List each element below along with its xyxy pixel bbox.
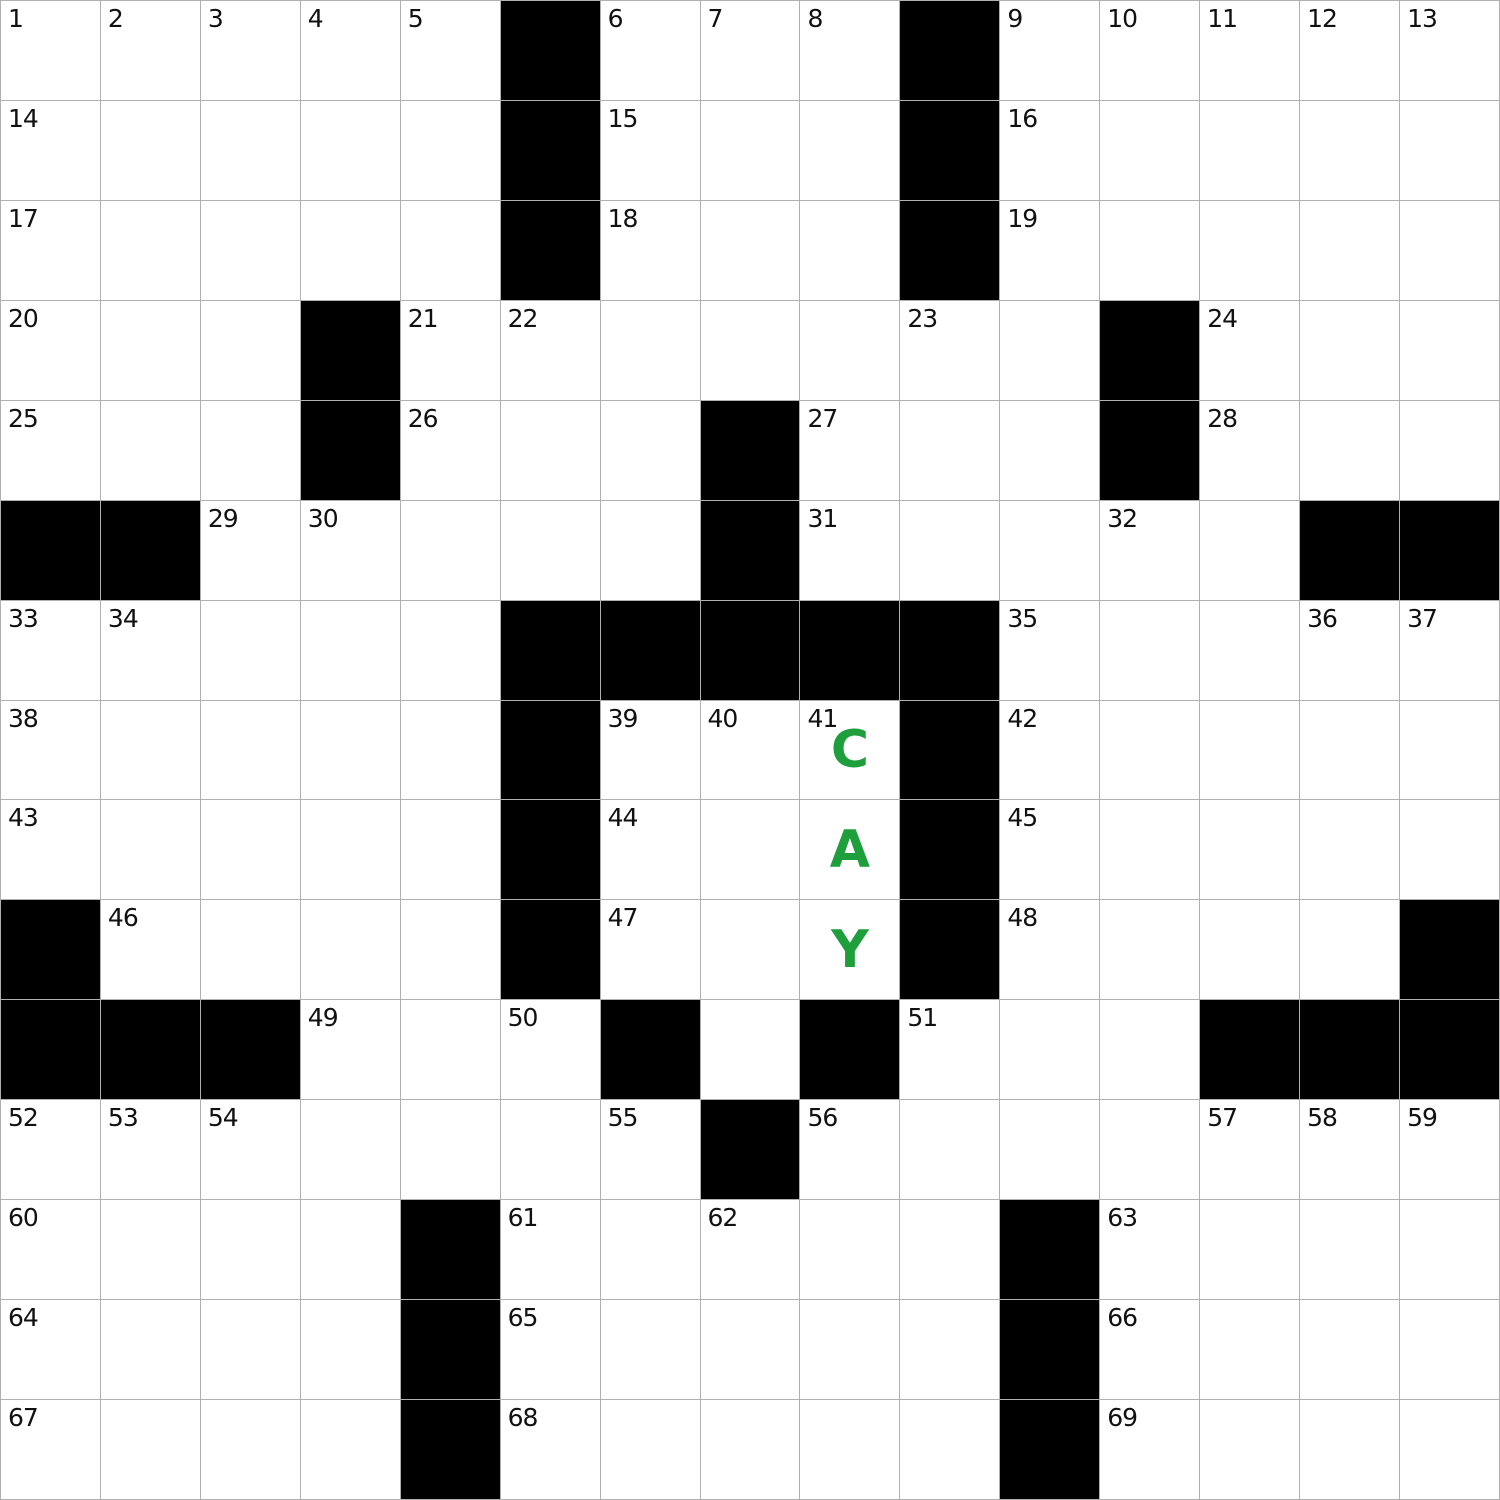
cell-number: 54: [208, 1105, 238, 1130]
black-cell: [501, 701, 600, 800]
grid-cell[interactable]: 20: [1, 301, 100, 400]
grid-cell[interactable]: [401, 1000, 500, 1099]
grid-cell[interactable]: 5: [401, 1, 500, 100]
grid-cell[interactable]: [101, 1300, 200, 1399]
cell-number: 29: [208, 506, 238, 531]
cell-number: 13: [1407, 6, 1437, 31]
grid-cell[interactable]: 65: [501, 1300, 600, 1399]
grid-cell[interactable]: A: [800, 800, 899, 899]
grid-cell[interactable]: [1000, 1000, 1099, 1099]
grid-cell[interactable]: [301, 701, 400, 800]
black-cell: [900, 201, 999, 300]
grid-cell[interactable]: [301, 900, 400, 999]
black-cell: [900, 1, 999, 100]
grid-cell[interactable]: 67: [1, 1400, 100, 1499]
grid-cell[interactable]: 11: [1200, 1, 1299, 100]
grid-cell[interactable]: [1000, 1100, 1099, 1199]
grid-cell[interactable]: 25: [1, 401, 100, 500]
grid-cell[interactable]: [201, 701, 300, 800]
cell-number: 47: [608, 905, 638, 930]
black-cell: [501, 101, 600, 200]
grid-cell[interactable]: [1300, 1300, 1399, 1399]
grid-cell[interactable]: [1200, 501, 1299, 600]
grid-cell[interactable]: 49: [301, 1000, 400, 1099]
grid-cell[interactable]: [900, 401, 999, 500]
grid-cell[interactable]: 8: [800, 1, 899, 100]
crossword-grid: 1234567891011121314151617181920212223242…: [0, 0, 1500, 1500]
grid-cell[interactable]: 7: [701, 1, 800, 100]
grid-cell[interactable]: [201, 1400, 300, 1499]
grid-cell[interactable]: 28: [1200, 401, 1299, 500]
black-cell: [1400, 900, 1499, 999]
black-cell: [1100, 401, 1199, 500]
cell-number: 28: [1207, 406, 1237, 431]
grid-cell[interactable]: 48: [1000, 900, 1099, 999]
grid-cell[interactable]: 53: [101, 1100, 200, 1199]
cell-number: 68: [508, 1405, 538, 1430]
grid-cell[interactable]: 6: [601, 1, 700, 100]
cell-number: 40: [708, 706, 738, 731]
cell-number: 26: [408, 406, 438, 431]
grid-cell[interactable]: [101, 101, 200, 200]
cell-number: 53: [108, 1105, 138, 1130]
cell-number: 17: [8, 206, 38, 231]
grid-cell[interactable]: 68: [501, 1400, 600, 1499]
grid-cell[interactable]: 34: [101, 601, 200, 700]
grid-cell[interactable]: [1200, 701, 1299, 800]
grid-cell[interactable]: [101, 800, 200, 899]
grid-cell[interactable]: [201, 1200, 300, 1299]
grid-cell[interactable]: 13: [1400, 1, 1499, 100]
grid-cell[interactable]: 50: [501, 1000, 600, 1099]
cell-number: 22: [508, 306, 538, 331]
black-cell: [401, 1400, 500, 1499]
grid-cell[interactable]: [301, 101, 400, 200]
cell-number: 37: [1407, 606, 1437, 631]
cell-number: 60: [8, 1205, 38, 1230]
grid-cell[interactable]: 59: [1400, 1100, 1499, 1199]
cell-number: 15: [608, 106, 638, 131]
grid-cell[interactable]: 3: [201, 1, 300, 100]
grid-cell[interactable]: 58: [1300, 1100, 1399, 1199]
grid-cell[interactable]: [401, 101, 500, 200]
grid-cell[interactable]: [301, 1200, 400, 1299]
grid-cell[interactable]: [401, 201, 500, 300]
grid-cell[interactable]: [201, 301, 300, 400]
grid-cell[interactable]: 39: [601, 701, 700, 800]
cell-number: 55: [608, 1105, 638, 1130]
grid-cell[interactable]: 43: [1, 800, 100, 899]
grid-cell[interactable]: [101, 701, 200, 800]
cell-number: 38: [8, 706, 38, 731]
cell-number: 58: [1307, 1105, 1337, 1130]
grid-cell[interactable]: 19: [1000, 201, 1099, 300]
grid-cell[interactable]: 29: [201, 501, 300, 600]
cell-number: 49: [308, 1005, 338, 1030]
black-cell: [301, 301, 400, 400]
grid-cell[interactable]: [800, 1400, 899, 1499]
grid-cell[interactable]: [1300, 401, 1399, 500]
cell-number: 20: [8, 306, 38, 331]
grid-cell[interactable]: 24: [1200, 301, 1299, 400]
grid-cell[interactable]: 60: [1, 1200, 100, 1299]
grid-cell[interactable]: [501, 401, 600, 500]
black-cell: [601, 601, 700, 700]
grid-cell[interactable]: [401, 601, 500, 700]
grid-cell[interactable]: [900, 1200, 999, 1299]
grid-cell[interactable]: [601, 1400, 700, 1499]
black-cell: [900, 900, 999, 999]
grid-cell[interactable]: [201, 601, 300, 700]
cell-number: 18: [608, 206, 638, 231]
grid-cell[interactable]: [101, 201, 200, 300]
grid-cell[interactable]: 37: [1400, 601, 1499, 700]
grid-cell[interactable]: 54: [201, 1100, 300, 1199]
cell-number: 8: [807, 6, 822, 31]
cell-letter: Y: [800, 900, 899, 999]
grid-cell[interactable]: [1200, 201, 1299, 300]
grid-cell[interactable]: [301, 1100, 400, 1199]
grid-cell[interactable]: [1400, 401, 1499, 500]
black-cell: [900, 601, 999, 700]
black-cell: [501, 900, 600, 999]
grid-cell[interactable]: [1300, 701, 1399, 800]
cell-number: 43: [8, 805, 38, 830]
cell-number: 30: [308, 506, 338, 531]
cell-number: 66: [1107, 1305, 1137, 1330]
grid-cell[interactable]: [501, 1100, 600, 1199]
cell-number: 3: [208, 6, 223, 31]
black-cell: [501, 800, 600, 899]
cell-number: 57: [1207, 1105, 1237, 1130]
grid-cell[interactable]: [1200, 1400, 1299, 1499]
grid-cell[interactable]: [1400, 701, 1499, 800]
grid-cell[interactable]: [401, 1100, 500, 1199]
grid-cell[interactable]: 40: [701, 701, 800, 800]
black-cell: [401, 1300, 500, 1399]
grid-cell[interactable]: [1300, 1400, 1399, 1499]
cell-number: 39: [608, 706, 638, 731]
grid-cell[interactable]: 51: [900, 1000, 999, 1099]
cell-number: 10: [1107, 6, 1137, 31]
cell-number: 56: [807, 1105, 837, 1130]
grid-cell[interactable]: [1200, 101, 1299, 200]
grid-cell[interactable]: [1400, 1300, 1499, 1399]
grid-cell[interactable]: [1100, 601, 1199, 700]
black-cell: [1000, 1400, 1099, 1499]
cell-number: 45: [1007, 805, 1037, 830]
grid-cell[interactable]: 23: [900, 301, 999, 400]
grid-cell[interactable]: [800, 301, 899, 400]
cell-number: 36: [1307, 606, 1337, 631]
grid-cell[interactable]: 45: [1000, 800, 1099, 899]
cell-number: 23: [907, 306, 937, 331]
grid-cell[interactable]: 32: [1100, 501, 1199, 600]
grid-cell[interactable]: [1200, 1300, 1299, 1399]
black-cell: [1000, 1200, 1099, 1299]
grid-cell[interactable]: [800, 1200, 899, 1299]
cell-number: 69: [1107, 1405, 1137, 1430]
grid-cell[interactable]: [401, 701, 500, 800]
grid-cell[interactable]: [401, 501, 500, 600]
grid-cell[interactable]: [1200, 800, 1299, 899]
grid-cell[interactable]: [101, 401, 200, 500]
grid-cell[interactable]: 46: [101, 900, 200, 999]
grid-cell[interactable]: [1200, 601, 1299, 700]
cell-number: 65: [508, 1305, 538, 1330]
cell-number: 35: [1007, 606, 1037, 631]
cell-number: 25: [8, 406, 38, 431]
grid-cell[interactable]: [201, 900, 300, 999]
cell-number: 46: [108, 905, 138, 930]
grid-cell[interactable]: [101, 1400, 200, 1499]
grid-cell[interactable]: 17: [1, 201, 100, 300]
grid-cell[interactable]: 27: [800, 401, 899, 500]
grid-cell[interactable]: [101, 301, 200, 400]
grid-cell[interactable]: [1400, 1400, 1499, 1499]
grid-cell[interactable]: [101, 1200, 200, 1299]
black-cell: [1300, 501, 1399, 600]
grid-cell[interactable]: 33: [1, 601, 100, 700]
cell-number: 14: [8, 106, 38, 131]
grid-cell[interactable]: 14: [1, 101, 100, 200]
grid-cell[interactable]: [1300, 900, 1399, 999]
cell-number: 51: [907, 1005, 937, 1030]
grid-cell[interactable]: [1300, 301, 1399, 400]
grid-cell[interactable]: [301, 201, 400, 300]
black-cell: [501, 601, 600, 700]
grid-cell[interactable]: [900, 1400, 999, 1499]
cell-number: 12: [1307, 6, 1337, 31]
cell-number: 1: [8, 6, 23, 31]
grid-cell[interactable]: 35: [1000, 601, 1099, 700]
black-cell: [900, 701, 999, 800]
grid-cell[interactable]: 1: [1, 1, 100, 100]
grid-cell[interactable]: [900, 1100, 999, 1199]
grid-cell[interactable]: 36: [1300, 601, 1399, 700]
black-cell: [1300, 1000, 1399, 1099]
black-cell: [800, 601, 899, 700]
black-cell: [501, 1, 600, 100]
cell-number: 5: [408, 6, 423, 31]
grid-cell[interactable]: [201, 800, 300, 899]
cell-number: 42: [1007, 706, 1037, 731]
grid-cell[interactable]: [601, 1200, 700, 1299]
grid-cell[interactable]: [701, 101, 800, 200]
grid-cell[interactable]: [401, 800, 500, 899]
grid-cell[interactable]: [501, 501, 600, 600]
grid-cell[interactable]: [1000, 401, 1099, 500]
grid-cell[interactable]: [1300, 101, 1399, 200]
grid-cell[interactable]: 41C: [800, 701, 899, 800]
cell-number: 52: [8, 1105, 38, 1130]
grid-cell[interactable]: [1200, 900, 1299, 999]
grid-cell[interactable]: [1000, 501, 1099, 600]
grid-cell[interactable]: [201, 1300, 300, 1399]
grid-cell[interactable]: [301, 800, 400, 899]
grid-cell[interactable]: [1300, 1200, 1399, 1299]
black-cell: [701, 401, 800, 500]
grid-cell[interactable]: [800, 101, 899, 200]
grid-cell[interactable]: 61: [501, 1200, 600, 1299]
cell-number: 67: [8, 1405, 38, 1430]
black-cell: [701, 1100, 800, 1199]
cell-number: 33: [8, 606, 38, 631]
grid-cell[interactable]: [301, 1300, 400, 1399]
cell-number: 63: [1107, 1205, 1137, 1230]
cell-number: 31: [807, 506, 837, 531]
grid-cell[interactable]: 63: [1100, 1200, 1199, 1299]
cell-number: 27: [807, 406, 837, 431]
grid-cell[interactable]: 66: [1100, 1300, 1199, 1399]
black-cell: [1, 900, 100, 999]
grid-cell[interactable]: [701, 1400, 800, 1499]
grid-cell[interactable]: 22: [501, 301, 600, 400]
grid-cell[interactable]: 10: [1100, 1, 1199, 100]
black-cell: [101, 501, 200, 600]
grid-cell[interactable]: [401, 900, 500, 999]
grid-cell[interactable]: [301, 601, 400, 700]
grid-cell[interactable]: [201, 401, 300, 500]
cell-number: 21: [408, 306, 438, 331]
black-cell: [1, 1000, 100, 1099]
grid-cell[interactable]: 21: [401, 301, 500, 400]
grid-cell[interactable]: [1400, 800, 1499, 899]
grid-cell[interactable]: [1400, 301, 1499, 400]
black-cell: [1400, 1000, 1499, 1099]
cell-number: 4: [308, 6, 323, 31]
grid-cell[interactable]: [1400, 201, 1499, 300]
grid-cell[interactable]: 18: [601, 201, 700, 300]
grid-cell[interactable]: 26: [401, 401, 500, 500]
black-cell: [101, 1000, 200, 1099]
cell-number: 50: [508, 1005, 538, 1030]
grid-cell[interactable]: [1100, 201, 1199, 300]
grid-cell[interactable]: [701, 800, 800, 899]
grid-cell[interactable]: 38: [1, 701, 100, 800]
grid-cell[interactable]: [1400, 101, 1499, 200]
grid-cell[interactable]: 42: [1000, 701, 1099, 800]
grid-cell[interactable]: [201, 201, 300, 300]
grid-cell[interactable]: Y: [800, 900, 899, 999]
cell-number: 19: [1007, 206, 1037, 231]
grid-cell[interactable]: 47: [601, 900, 700, 999]
grid-cell[interactable]: 56: [800, 1100, 899, 1199]
cell-number: 48: [1007, 905, 1037, 930]
cell-number: 11: [1207, 6, 1237, 31]
grid-cell[interactable]: [1000, 301, 1099, 400]
grid-cell[interactable]: 62: [701, 1200, 800, 1299]
grid-cell[interactable]: 9: [1000, 1, 1099, 100]
grid-cell[interactable]: [1400, 1200, 1499, 1299]
grid-cell[interactable]: [1100, 800, 1199, 899]
grid-cell[interactable]: 64: [1, 1300, 100, 1399]
grid-cell[interactable]: [701, 301, 800, 400]
grid-cell[interactable]: 44: [601, 800, 700, 899]
grid-cell[interactable]: [601, 401, 700, 500]
grid-cell[interactable]: [1200, 1200, 1299, 1299]
grid-cell[interactable]: [900, 501, 999, 600]
grid-cell[interactable]: [701, 201, 800, 300]
black-cell: [701, 601, 800, 700]
grid-cell[interactable]: 30: [301, 501, 400, 600]
grid-cell[interactable]: [1100, 900, 1199, 999]
black-cell: [401, 1200, 500, 1299]
grid-cell[interactable]: [800, 201, 899, 300]
black-cell: [701, 501, 800, 600]
grid-cell[interactable]: [701, 900, 800, 999]
grid-cell[interactable]: 16: [1000, 101, 1099, 200]
cell-number: 2: [108, 6, 123, 31]
black-cell: [900, 101, 999, 200]
grid-cell[interactable]: [601, 1300, 700, 1399]
cell-number: 62: [708, 1205, 738, 1230]
cell-number: 16: [1007, 106, 1037, 131]
cell-letter: C: [800, 701, 899, 800]
grid-cell[interactable]: 2: [101, 1, 200, 100]
black-cell: [1200, 1000, 1299, 1099]
black-cell: [800, 1000, 899, 1099]
cell-number: 32: [1107, 506, 1137, 531]
grid-cell[interactable]: [1100, 1100, 1199, 1199]
grid-cell[interactable]: 57: [1200, 1100, 1299, 1199]
grid-cell[interactable]: 31: [800, 501, 899, 600]
cell-number: 9: [1007, 6, 1022, 31]
cell-number: 64: [8, 1305, 38, 1330]
black-cell: [1400, 501, 1499, 600]
cell-letter: A: [800, 800, 899, 899]
grid-cell[interactable]: 55: [601, 1100, 700, 1199]
grid-cell[interactable]: [701, 1300, 800, 1399]
grid-cell[interactable]: 12: [1300, 1, 1399, 100]
black-cell: [301, 401, 400, 500]
grid-cell[interactable]: [900, 1300, 999, 1399]
black-cell: [1000, 1300, 1099, 1399]
grid-cell[interactable]: [1300, 800, 1399, 899]
grid-cell[interactable]: [1300, 201, 1399, 300]
grid-cell[interactable]: [601, 501, 700, 600]
grid-cell[interactable]: 69: [1100, 1400, 1199, 1499]
cell-number: 7: [708, 6, 723, 31]
black-cell: [900, 800, 999, 899]
black-cell: [501, 201, 600, 300]
grid-cell[interactable]: [800, 1300, 899, 1399]
grid-cell[interactable]: [701, 1000, 800, 1099]
cell-number: 44: [608, 805, 638, 830]
black-cell: [1100, 301, 1199, 400]
grid-cell[interactable]: [1100, 1000, 1199, 1099]
grid-cell[interactable]: [201, 101, 300, 200]
black-cell: [1, 501, 100, 600]
cell-number: 34: [108, 606, 138, 631]
grid-cell[interactable]: 4: [301, 1, 400, 100]
cell-number: 59: [1407, 1105, 1437, 1130]
grid-cell[interactable]: 15: [601, 101, 700, 200]
grid-cell[interactable]: [1100, 701, 1199, 800]
grid-cell[interactable]: [301, 1400, 400, 1499]
grid-cell[interactable]: [1100, 101, 1199, 200]
cell-number: 61: [508, 1205, 538, 1230]
grid-cell[interactable]: 52: [1, 1100, 100, 1199]
cell-number: 24: [1207, 306, 1237, 331]
black-cell: [601, 1000, 700, 1099]
black-cell: [201, 1000, 300, 1099]
cell-number: 6: [608, 6, 623, 31]
grid-cell[interactable]: [601, 301, 700, 400]
